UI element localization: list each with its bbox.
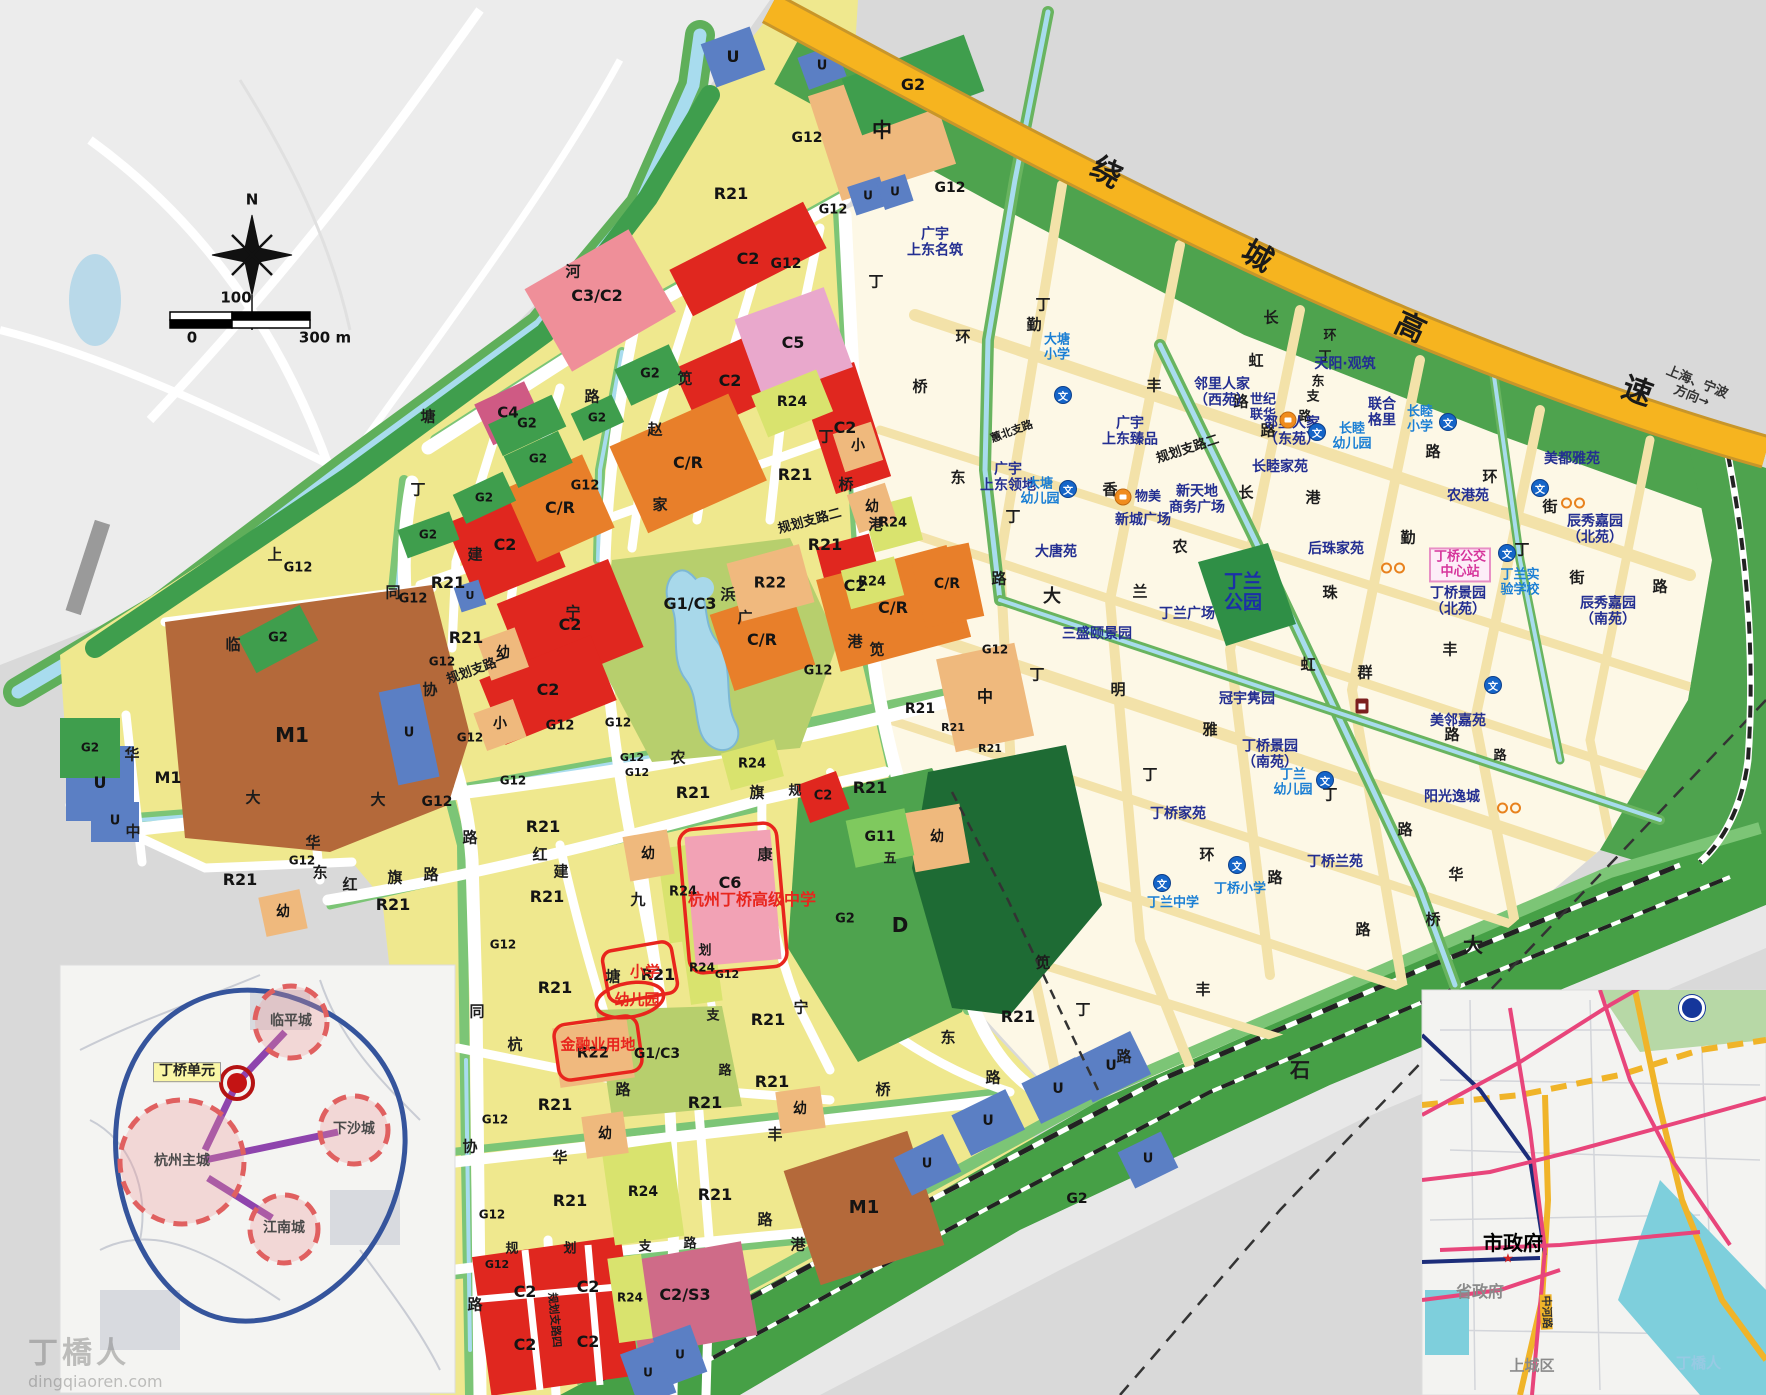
planning-map: N1000300 m绕城高速上海、宁波方向→UG2中UG12R21G12UUG1… — [0, 0, 1766, 1395]
inset-location-map — [60, 965, 455, 1393]
map-artwork — [0, 0, 1766, 1395]
inset-road-network-map — [1422, 965, 1766, 1395]
